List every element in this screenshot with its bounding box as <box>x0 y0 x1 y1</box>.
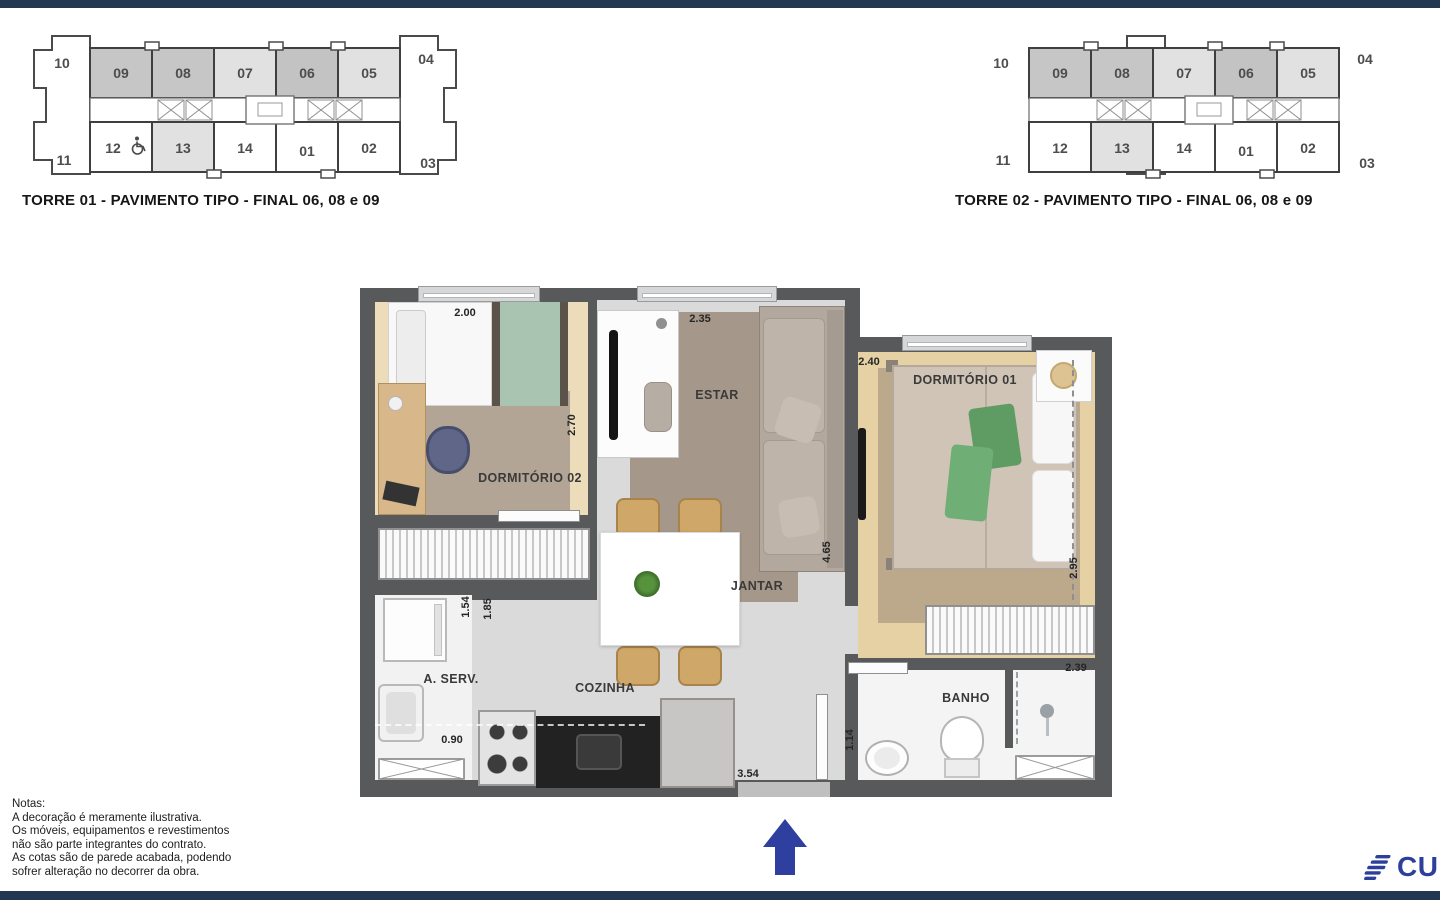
unit-02-label: 02 <box>361 140 377 156</box>
unit-05-label: 05 <box>361 65 377 81</box>
dining-table <box>600 532 740 646</box>
unit-08-label: 08 <box>175 65 191 81</box>
dining-chair <box>678 646 722 686</box>
unit-09-label: 09 <box>113 65 129 81</box>
table-plant <box>634 571 660 597</box>
keyplan-torre-01-drawing: 10 11 04 03 09 08 07 06 05 12 13 14 01 0… <box>20 12 470 188</box>
unit-11-label: 11 <box>57 152 72 168</box>
facade-notch <box>1146 170 1160 178</box>
dim-estar-width: 2.35 <box>680 313 720 325</box>
dim-dorm2-depth: 2.70 <box>566 405 578 445</box>
keyplan-torre-01: 10 11 04 03 09 08 07 06 05 12 13 14 01 0… <box>20 12 470 188</box>
dim-aserv-w2: 1.85 <box>482 589 494 629</box>
dim-dorm1-width: 2.40 <box>849 356 889 368</box>
dormitorio2-label: DORMITÓRIO 02 <box>478 471 582 485</box>
torre-01-caption: TORRE 01 - PAVIMENTO TIPO - FINAL 06, 08… <box>22 192 380 209</box>
dim-sala-depth: 4.65 <box>821 532 833 572</box>
hall-opening <box>845 606 858 654</box>
torre-02-caption: TORRE 02 - PAVIMENTO TIPO - FINAL 06, 08… <box>955 192 1313 209</box>
duct-hatch <box>1015 755 1095 780</box>
sofa-back <box>827 310 843 568</box>
bathroom-sink-basin <box>874 747 900 769</box>
desk-chair <box>426 426 470 474</box>
counter-projection-line <box>375 724 645 726</box>
lobby <box>246 96 294 124</box>
tv <box>609 330 618 440</box>
notes-line: As cotas são de parede acabada, podendo <box>12 852 231 866</box>
shower-head <box>1040 704 1054 718</box>
unit-06-label: 06 <box>1238 65 1254 81</box>
pouf <box>644 382 672 432</box>
cury-logo-icon <box>1363 851 1393 883</box>
estar-window <box>637 286 777 302</box>
apartment-plan: DORMITÓRIO 02 ESTAR DORMITÓRIO 01 JANTAR… <box>360 288 1112 797</box>
facade-notch <box>1260 170 1274 178</box>
banho-label: BANHO <box>942 691 990 705</box>
lobby <box>1185 96 1233 124</box>
unit-07-label: 07 <box>237 65 253 81</box>
facade-notch <box>145 42 159 50</box>
notes-line: sofrer alteração no decorrer da obra. <box>12 866 231 880</box>
unit-08-label: 08 <box>1114 65 1130 81</box>
kitchen-sink <box>576 734 622 770</box>
dim-dorm2-width: 2.00 <box>445 307 485 319</box>
dormitorio1-window <box>902 335 1032 351</box>
notes-block: Notas: A decoração é meramente ilustrati… <box>12 798 231 879</box>
top-accent-bar <box>0 0 1440 8</box>
toilet-bowl <box>940 716 984 762</box>
notes-line: não são parte integrantes do contrato. <box>12 839 231 853</box>
single-bed-footboard <box>560 302 568 406</box>
shower-stem <box>1046 718 1049 736</box>
facade-notch <box>1270 42 1284 50</box>
unit-13-label: 13 <box>1114 140 1130 156</box>
duct-hatch <box>378 758 465 780</box>
unit-12-label: 12 <box>1052 140 1068 156</box>
unit-04-label: 04 <box>418 51 434 67</box>
dormitorio2-wardrobe <box>378 528 590 580</box>
notes-title: Notas: <box>12 798 231 812</box>
cozinha-label: COZINHA <box>575 681 635 695</box>
keyplan-torre-02: 10 11 04 03 09 08 07 06 05 12 13 14 01 0… <box>953 16 1415 186</box>
stove <box>478 710 536 786</box>
unit-04-label: 04 <box>1357 51 1373 67</box>
unit-03-label: 03 <box>420 155 436 171</box>
dim-aserv-w1: 1.54 <box>460 587 472 627</box>
notes-line: A decoração é meramente ilustrativa. <box>12 812 231 826</box>
plan-cutout <box>860 288 1112 337</box>
green-cushion <box>944 444 994 522</box>
toilet-tank <box>944 758 980 778</box>
dim-cozinha-width: 3.54 <box>728 768 768 780</box>
unit-01-label: 01 <box>299 143 315 159</box>
single-bed-frame <box>492 302 500 406</box>
facade-notch <box>1084 42 1098 50</box>
dim-dorm1-depth: 2.95 <box>1068 548 1080 588</box>
dormitorio1-label: DORMITÓRIO 01 <box>913 373 1017 387</box>
dim-banho-width: 1.14 <box>844 720 856 760</box>
keyplan-torre-02-drawing: 10 11 04 03 09 08 07 06 05 12 13 14 01 0… <box>953 16 1415 186</box>
unit-06-label: 06 <box>299 65 315 81</box>
dim-aserv-depth: 0.90 <box>432 734 472 746</box>
dormitorio2-sliding-door <box>498 510 580 522</box>
bottom-accent-bar <box>0 891 1440 900</box>
unit-03-label: 03 <box>1359 155 1375 171</box>
area-servico-label: A. SERV. <box>423 672 478 686</box>
cury-logo-text: CURY <box>1397 851 1440 883</box>
notes-line: Os móveis, equipamentos e revestimentos <box>12 825 231 839</box>
facade-notch <box>331 42 345 50</box>
unit-02-label: 02 <box>1300 140 1316 156</box>
unit-13-label: 13 <box>175 140 191 156</box>
floorplan-sheet: { "colors": {"navy":"#223850","brand":"#… <box>0 0 1440 900</box>
facade-notch <box>269 42 283 50</box>
desk-cup <box>388 396 403 411</box>
shower-glass <box>1016 672 1018 744</box>
jantar-label: JANTAR <box>731 579 783 593</box>
entrance-arrow-icon <box>763 819 807 875</box>
cury-logo: CURY <box>1363 851 1440 883</box>
unit-10-label: 10 <box>993 55 1009 71</box>
unit-09-label: 09 <box>1052 65 1068 81</box>
laundry-tank-basin <box>386 692 416 734</box>
banho-door <box>848 662 908 674</box>
sofa-pillow <box>777 495 821 539</box>
single-bed-blanket <box>500 302 560 406</box>
dormitorio1-tv <box>858 428 866 520</box>
dining-chair <box>616 646 660 686</box>
unit-11-label: 11 <box>996 152 1011 168</box>
facade-notch <box>207 170 221 178</box>
entrance-door <box>816 694 828 780</box>
facade-notch <box>1208 42 1222 50</box>
unit-14-label: 14 <box>1176 140 1192 156</box>
dim-banho-depth: 2.39 <box>1056 662 1096 674</box>
unit-07-label: 07 <box>1176 65 1192 81</box>
dormitorio1-wardrobe <box>925 605 1095 655</box>
washer-drum <box>434 604 442 656</box>
unit-10-label: 10 <box>54 55 70 71</box>
unit-14-label: 14 <box>237 140 253 156</box>
unit-01-label: 01 <box>1238 143 1254 159</box>
facade-notch <box>321 170 335 178</box>
fridge <box>660 698 735 788</box>
vase <box>656 318 667 329</box>
dormitorio2-window <box>418 286 540 302</box>
unit-05-label: 05 <box>1300 65 1316 81</box>
shower-partition-wall <box>1005 670 1013 748</box>
entrance-threshold <box>738 782 830 797</box>
unit-12-label: 12 <box>105 140 121 156</box>
estar-label: ESTAR <box>695 388 738 402</box>
